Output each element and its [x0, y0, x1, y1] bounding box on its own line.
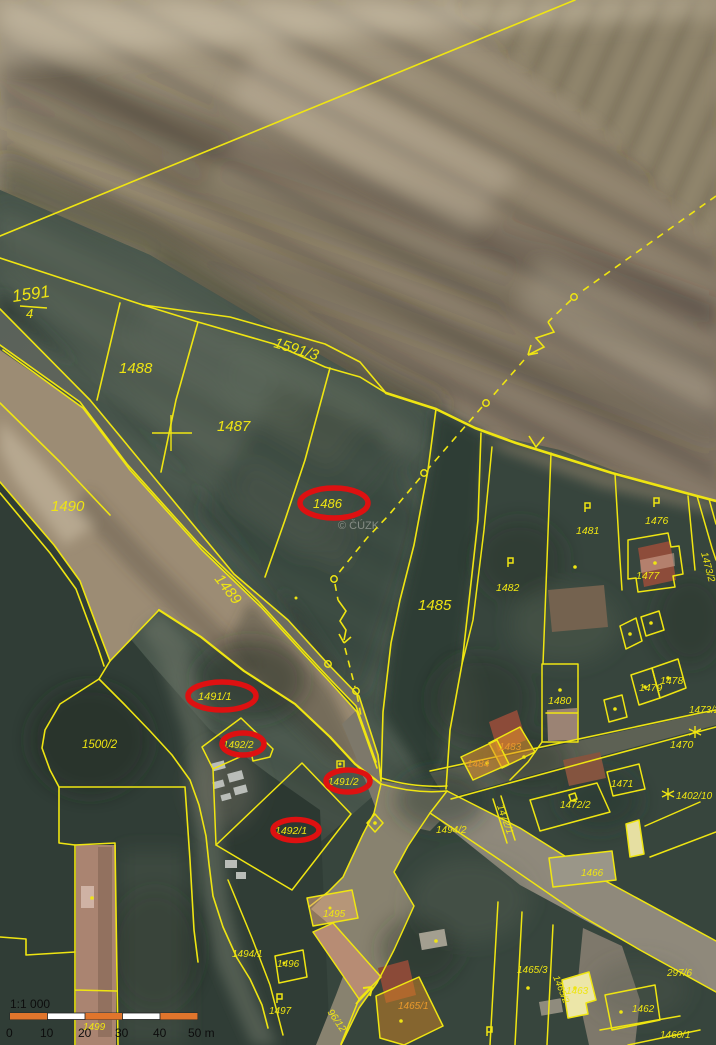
svg-text:1470: 1470 [670, 739, 694, 751]
svg-text:1491/1: 1491/1 [198, 691, 232, 703]
svg-text:1478: 1478 [660, 675, 684, 687]
svg-text:1466: 1466 [581, 868, 604, 879]
svg-text:1402/10: 1402/10 [676, 791, 713, 802]
svg-text:1494/1: 1494/1 [232, 949, 263, 960]
svg-text:1482: 1482 [496, 582, 520, 594]
svg-text:1460/1: 1460/1 [660, 1030, 691, 1041]
svg-text:1476: 1476 [645, 515, 669, 527]
svg-text:4: 4 [26, 306, 33, 321]
svg-text:1463: 1463 [566, 986, 589, 997]
svg-text:1462: 1462 [632, 1004, 655, 1015]
svg-text:1465/3: 1465/3 [517, 965, 548, 976]
svg-text:1487: 1487 [217, 418, 251, 435]
svg-text:30: 30 [115, 1026, 129, 1040]
svg-text:1481: 1481 [576, 525, 599, 537]
svg-text:1488: 1488 [119, 360, 153, 377]
svg-text:1465/1: 1465/1 [398, 1001, 429, 1012]
svg-text:0: 0 [6, 1026, 13, 1040]
svg-text:1496: 1496 [277, 959, 300, 970]
svg-text:1483: 1483 [499, 742, 522, 753]
svg-text:1471: 1471 [611, 779, 633, 790]
svg-text:1500/2: 1500/2 [82, 739, 118, 751]
svg-text:1497: 1497 [269, 1006, 292, 1017]
svg-text:50 m: 50 m [188, 1026, 215, 1040]
svg-text:1495: 1495 [323, 909, 346, 920]
svg-text:1477: 1477 [636, 570, 661, 582]
svg-text:1473/2: 1473/2 [689, 705, 716, 716]
svg-text:1486: 1486 [313, 496, 343, 511]
svg-text:297/6: 297/6 [666, 968, 692, 979]
svg-text:1:1 000: 1:1 000 [10, 997, 50, 1011]
svg-text:1480: 1480 [548, 695, 572, 707]
svg-text:40: 40 [153, 1026, 167, 1040]
svg-text:1472/2: 1472/2 [560, 800, 591, 811]
svg-text:10: 10 [40, 1026, 54, 1040]
svg-text:1485: 1485 [418, 597, 452, 614]
svg-text:1479: 1479 [639, 682, 663, 694]
svg-text:1494/2: 1494/2 [436, 825, 467, 836]
svg-text:20: 20 [78, 1026, 92, 1040]
svg-text:1490: 1490 [51, 498, 85, 515]
svg-text:1484: 1484 [467, 759, 490, 770]
